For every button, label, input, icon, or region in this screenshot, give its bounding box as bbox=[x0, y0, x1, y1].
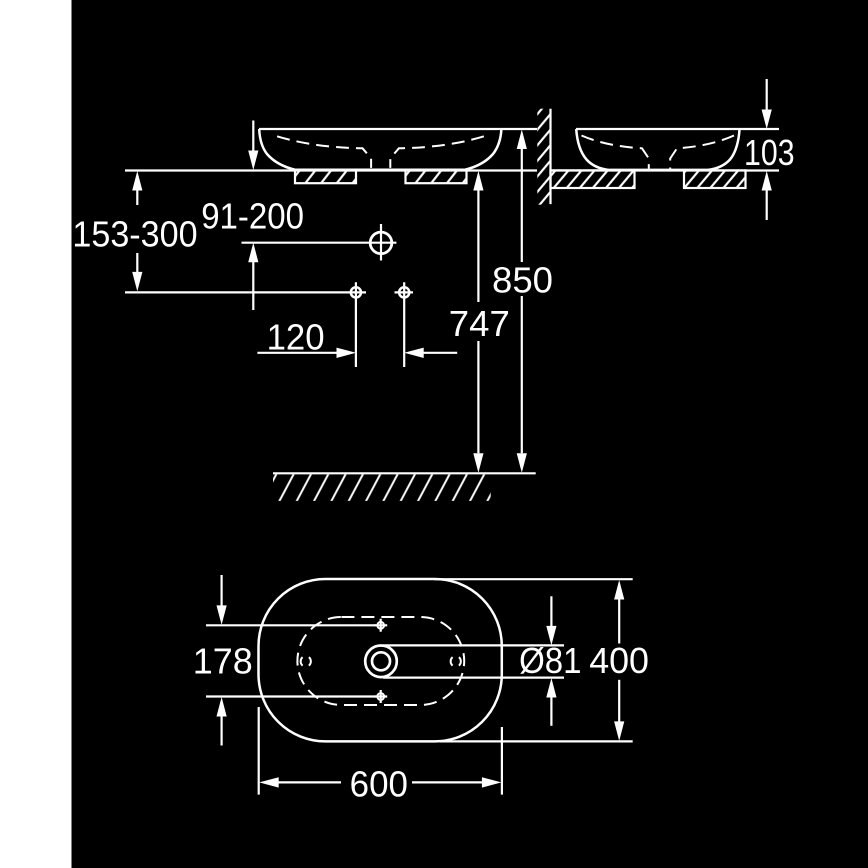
svg-text:120: 120 bbox=[267, 317, 325, 358]
svg-text:850: 850 bbox=[492, 259, 553, 300]
svg-text:178: 178 bbox=[193, 641, 253, 682]
svg-text:400: 400 bbox=[589, 640, 649, 681]
svg-text:103: 103 bbox=[744, 132, 795, 173]
svg-text:91-200: 91-200 bbox=[201, 196, 304, 237]
svg-text:153-300: 153-300 bbox=[72, 214, 197, 255]
svg-text:600: 600 bbox=[350, 763, 408, 804]
svg-text:747: 747 bbox=[449, 303, 510, 344]
svg-text:Ø81: Ø81 bbox=[519, 640, 581, 681]
